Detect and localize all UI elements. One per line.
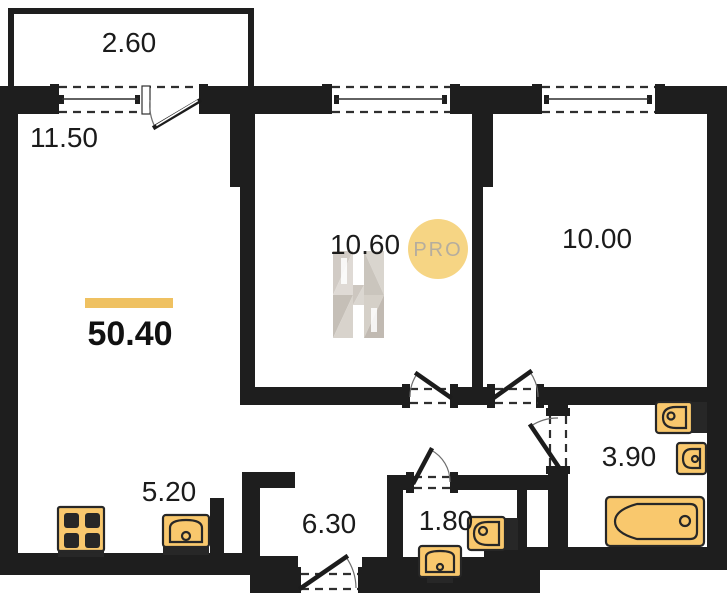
toilet-drain xyxy=(668,413,675,420)
bathroom-toilet-icon xyxy=(656,402,707,433)
wall-segment xyxy=(207,86,332,114)
door-leaf xyxy=(417,374,450,397)
door-arc xyxy=(410,374,417,397)
kitchen-area-label: 5.20 xyxy=(142,476,197,507)
door-frame xyxy=(142,86,150,114)
balcony-door xyxy=(142,86,199,127)
wall-segment xyxy=(484,547,727,570)
entrance-door xyxy=(301,557,358,589)
watermark-slot xyxy=(341,258,347,284)
wall-cap xyxy=(450,84,460,114)
sink-drain xyxy=(692,456,698,462)
total-area-label: 50.40 xyxy=(87,315,172,353)
wall-cap xyxy=(532,84,542,114)
toilet-drain xyxy=(479,527,487,535)
door-dash xyxy=(414,477,450,488)
bathtub-drain xyxy=(680,516,690,526)
floor-plan-svg: PRO 2.60 11.50 10.60 10.00 50.40 5.20 6.… xyxy=(0,0,727,600)
bathtub-icon xyxy=(606,497,704,546)
bedroom-right-door xyxy=(495,372,538,403)
wall-cap xyxy=(546,408,570,416)
wc-sink-icon xyxy=(419,546,461,583)
wall-segment xyxy=(517,490,527,550)
stove-burner xyxy=(64,513,79,528)
watermark-slot xyxy=(371,308,377,332)
wall-cap xyxy=(50,84,59,114)
door-leaf xyxy=(495,372,530,397)
door-leaf xyxy=(301,557,346,588)
watermark-h xyxy=(333,251,384,338)
pro-badge: PRO xyxy=(408,219,468,279)
bathroom-area-label: 3.90 xyxy=(602,441,657,472)
door-arc xyxy=(531,418,558,426)
wall-segment xyxy=(230,114,255,187)
stove-icon xyxy=(58,507,104,557)
wc-area-label: 1.80 xyxy=(419,505,474,536)
wall-segment xyxy=(0,86,18,575)
wc-toilet-icon xyxy=(468,517,518,550)
living-area-label: 11.50 xyxy=(30,122,98,153)
wall-segment xyxy=(240,387,402,405)
accent-bar xyxy=(85,298,173,308)
balcony-area-label: 2.60 xyxy=(102,27,157,58)
wall-segment xyxy=(0,553,250,575)
floor-plan: PRO 2.60 11.50 10.60 10.00 50.40 5.20 6.… xyxy=(0,0,727,600)
wall-segment xyxy=(210,498,224,554)
door-leaf-highlight xyxy=(157,101,197,125)
balcony-window xyxy=(59,87,199,112)
wall-segment xyxy=(548,467,568,550)
wall-segment xyxy=(242,472,260,567)
wall-segment xyxy=(248,8,254,88)
bedroom-mid-area-label: 10.60 xyxy=(330,229,400,260)
wall-segment xyxy=(8,8,14,88)
sink-base xyxy=(163,547,209,555)
pro-badge-label: PRO xyxy=(413,239,462,261)
bedroom-right-window xyxy=(542,87,655,112)
door-arc xyxy=(346,557,356,588)
bathroom-sink-icon xyxy=(677,443,706,474)
bathroom-door xyxy=(531,416,566,466)
bedroom-mid-door xyxy=(410,374,450,403)
wall-segment xyxy=(250,556,298,593)
kitchen-sink-icon xyxy=(163,515,209,555)
bedroom-right-area-label: 10.00 xyxy=(562,223,632,254)
wall-segment xyxy=(707,86,727,570)
sink-drain xyxy=(437,564,443,570)
wc-door xyxy=(414,450,450,488)
wall-cap xyxy=(402,384,410,408)
stove-burner xyxy=(85,513,100,528)
sink-drain xyxy=(182,532,190,540)
door-leaf xyxy=(531,426,558,466)
wall-segment xyxy=(460,86,540,114)
wall-segment xyxy=(8,8,254,14)
hallway-area-label: 6.30 xyxy=(302,508,357,539)
wall-cap xyxy=(322,84,332,114)
wall-segment xyxy=(240,187,255,387)
wall-segment xyxy=(472,187,483,387)
bedroom-mid-window xyxy=(332,87,450,112)
stove-burner xyxy=(64,533,79,548)
stove-burner xyxy=(85,533,100,548)
wall-segment xyxy=(472,114,493,187)
wall-segment xyxy=(455,475,548,490)
